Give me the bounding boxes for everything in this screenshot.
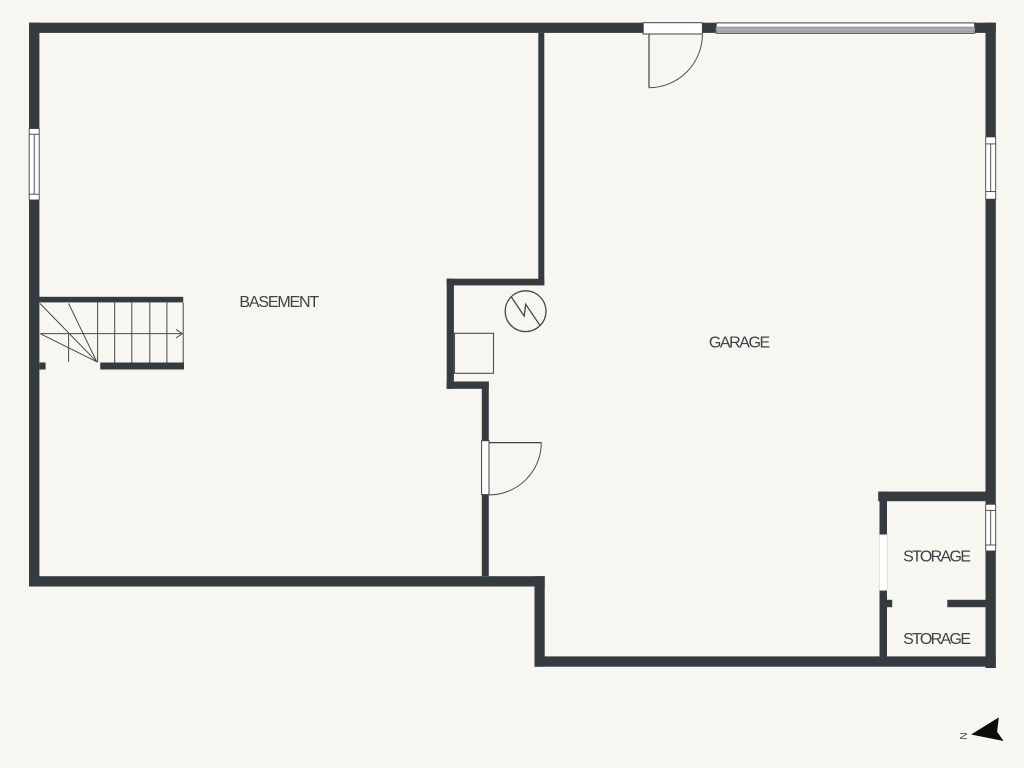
svg-text:STORAGE: STORAGE — [903, 549, 970, 566]
svg-text:STORAGE: STORAGE — [903, 631, 970, 648]
svg-text:GARAGE: GARAGE — [709, 335, 770, 352]
svg-text:N: N — [959, 732, 970, 739]
svg-text:BASEMENT: BASEMENT — [239, 294, 319, 311]
